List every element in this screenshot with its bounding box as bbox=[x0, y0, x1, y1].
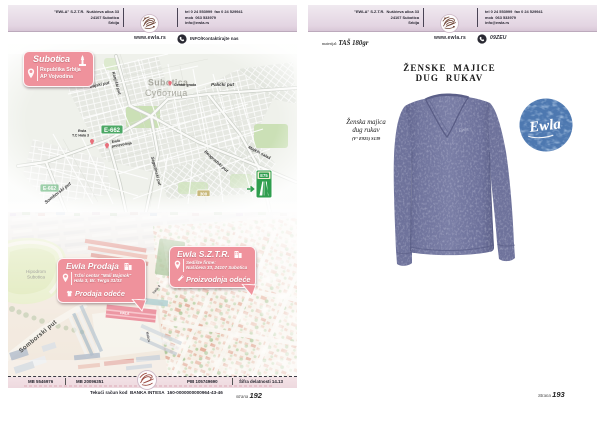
svg-text:E75: E75 bbox=[260, 173, 268, 178]
svg-text:Centar grada: Centar grada bbox=[174, 83, 197, 87]
svg-text:Palićki put: Palićki put bbox=[211, 82, 234, 87]
svg-text:E-662: E-662 bbox=[104, 128, 121, 134]
svg-text:Суботица: Суботица bbox=[145, 88, 188, 98]
svg-text:E-662: E-662 bbox=[43, 186, 57, 192]
svg-text:Ewla: Ewla bbox=[78, 129, 87, 133]
svg-text:300: 300 bbox=[200, 191, 208, 196]
svg-text:T.C Hala 3: T.C Hala 3 bbox=[72, 134, 89, 138]
